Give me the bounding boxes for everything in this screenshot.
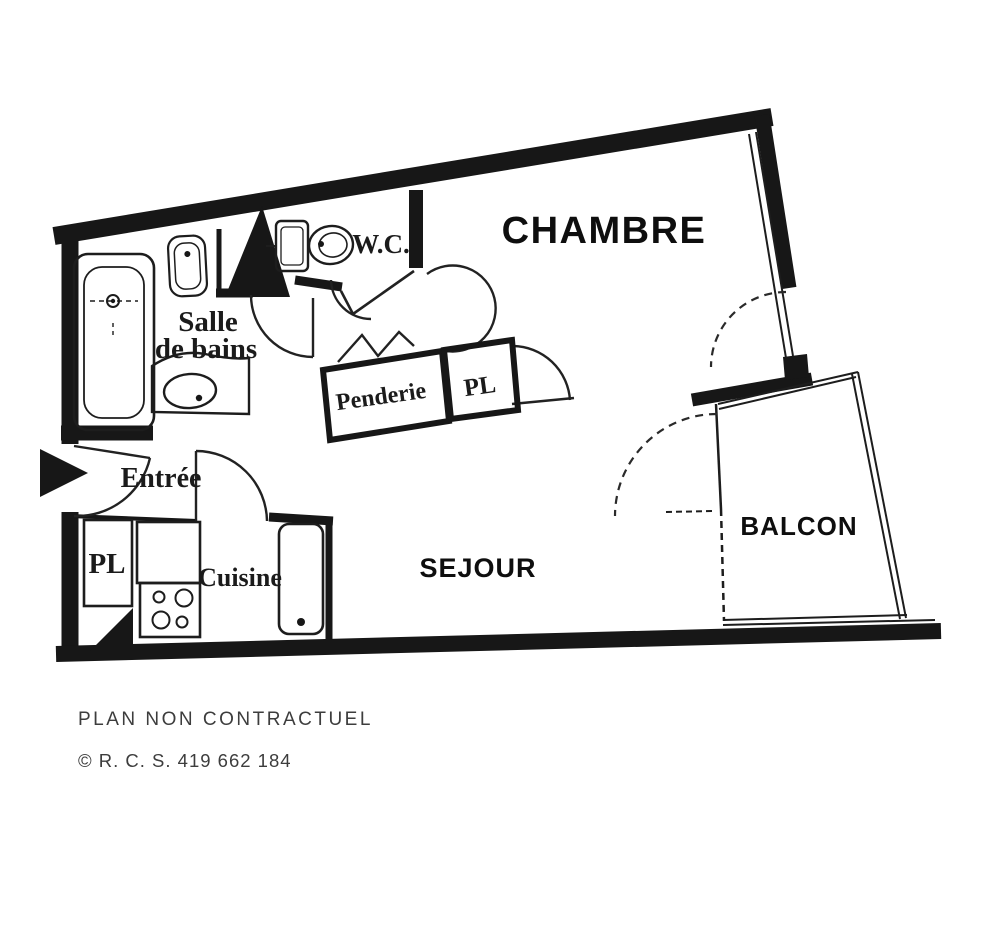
duct-shaft-triangle bbox=[225, 206, 290, 297]
bidet bbox=[167, 235, 207, 297]
wall-wc-bottom bbox=[295, 280, 342, 287]
stove-burner-small-2 bbox=[177, 617, 188, 628]
water-heater bbox=[279, 524, 323, 634]
stove-burner-large-2 bbox=[153, 612, 170, 629]
label-entree: Entrée bbox=[121, 463, 202, 494]
label-chambre: CHAMBRE bbox=[502, 210, 707, 252]
wall-chambre-right bbox=[762, 115, 789, 288]
bathtub-tap-dot bbox=[111, 299, 115, 303]
bathtub-inner bbox=[84, 267, 144, 418]
label-sejour: SEJOUR bbox=[419, 553, 536, 583]
toilet-bowl bbox=[307, 223, 355, 266]
floor-plan-page: CHAMBRE W.C. Salle de bains Entrée Pende… bbox=[0, 0, 1000, 952]
chambre-door-swing-arc bbox=[427, 266, 496, 352]
placard-door-leaf bbox=[512, 398, 574, 404]
room-labels: CHAMBRE W.C. Salle de bains Entrée Pende… bbox=[88, 210, 857, 592]
washbasin-drain-dot bbox=[196, 395, 202, 401]
balcony-rail-right-outer bbox=[858, 372, 906, 618]
balcony-rail-bottom-inner bbox=[723, 615, 907, 620]
toilet-tank-inner bbox=[281, 227, 303, 265]
sejour-balcony-edge-solid bbox=[716, 404, 721, 509]
kitchen-door-arc bbox=[196, 451, 267, 521]
label-cuisine: Cuisine bbox=[198, 563, 282, 592]
kitchen-counter bbox=[137, 522, 200, 583]
placard-door-arc bbox=[513, 346, 570, 400]
balcony-rail-right-inner bbox=[852, 374, 900, 619]
entrance-arrow-icon bbox=[40, 449, 88, 497]
label-balcon: BALCON bbox=[740, 511, 857, 541]
entrance-door-leaf bbox=[74, 446, 150, 458]
stove-burner-small-1 bbox=[154, 592, 165, 603]
bidet-inner bbox=[174, 242, 201, 289]
caption-registration: © R. C. S. 419 662 184 bbox=[78, 750, 292, 771]
bidet-dot bbox=[184, 251, 190, 257]
bidet-outer bbox=[167, 235, 207, 297]
chambre-door-leaf-a bbox=[353, 271, 414, 314]
footer-captions: PLAN NON CONTRACTUEL © R. C. S. 419 662 … bbox=[78, 709, 373, 771]
washbasin-bowl bbox=[163, 372, 217, 410]
sejour-balcony-threshold bbox=[666, 511, 713, 512]
sejour-balcony-edge-dashed bbox=[721, 509, 724, 621]
water-heater-dot bbox=[297, 618, 305, 626]
stove-burner-large-1 bbox=[176, 590, 193, 607]
toilet-dot bbox=[318, 241, 324, 247]
label-placard-cuisine: PL bbox=[88, 548, 125, 580]
label-wc: W.C. bbox=[352, 229, 410, 259]
balcony-junction-block bbox=[783, 354, 809, 380]
bathtub-outer bbox=[74, 254, 154, 430]
kitchen-stove bbox=[140, 583, 200, 637]
sejour-balcony-door-arc bbox=[615, 414, 717, 516]
floor-plan-svg: CHAMBRE W.C. Salle de bains Entrée Pende… bbox=[0, 0, 1000, 952]
corner-shaft-triangle bbox=[90, 608, 133, 651]
wall-kitchen-top-right bbox=[269, 517, 333, 521]
label-penderie: Penderie bbox=[334, 378, 428, 416]
label-placard-hall: PL bbox=[462, 371, 497, 402]
label-salle-de-bains-line2: de bains bbox=[155, 333, 257, 365]
wall-bottom bbox=[56, 631, 941, 654]
bathroom-door-arc bbox=[251, 295, 313, 357]
caption-disclaimer: PLAN NON CONTRACTUEL bbox=[78, 709, 373, 730]
chambre-balcony-door-arc bbox=[711, 292, 786, 367]
